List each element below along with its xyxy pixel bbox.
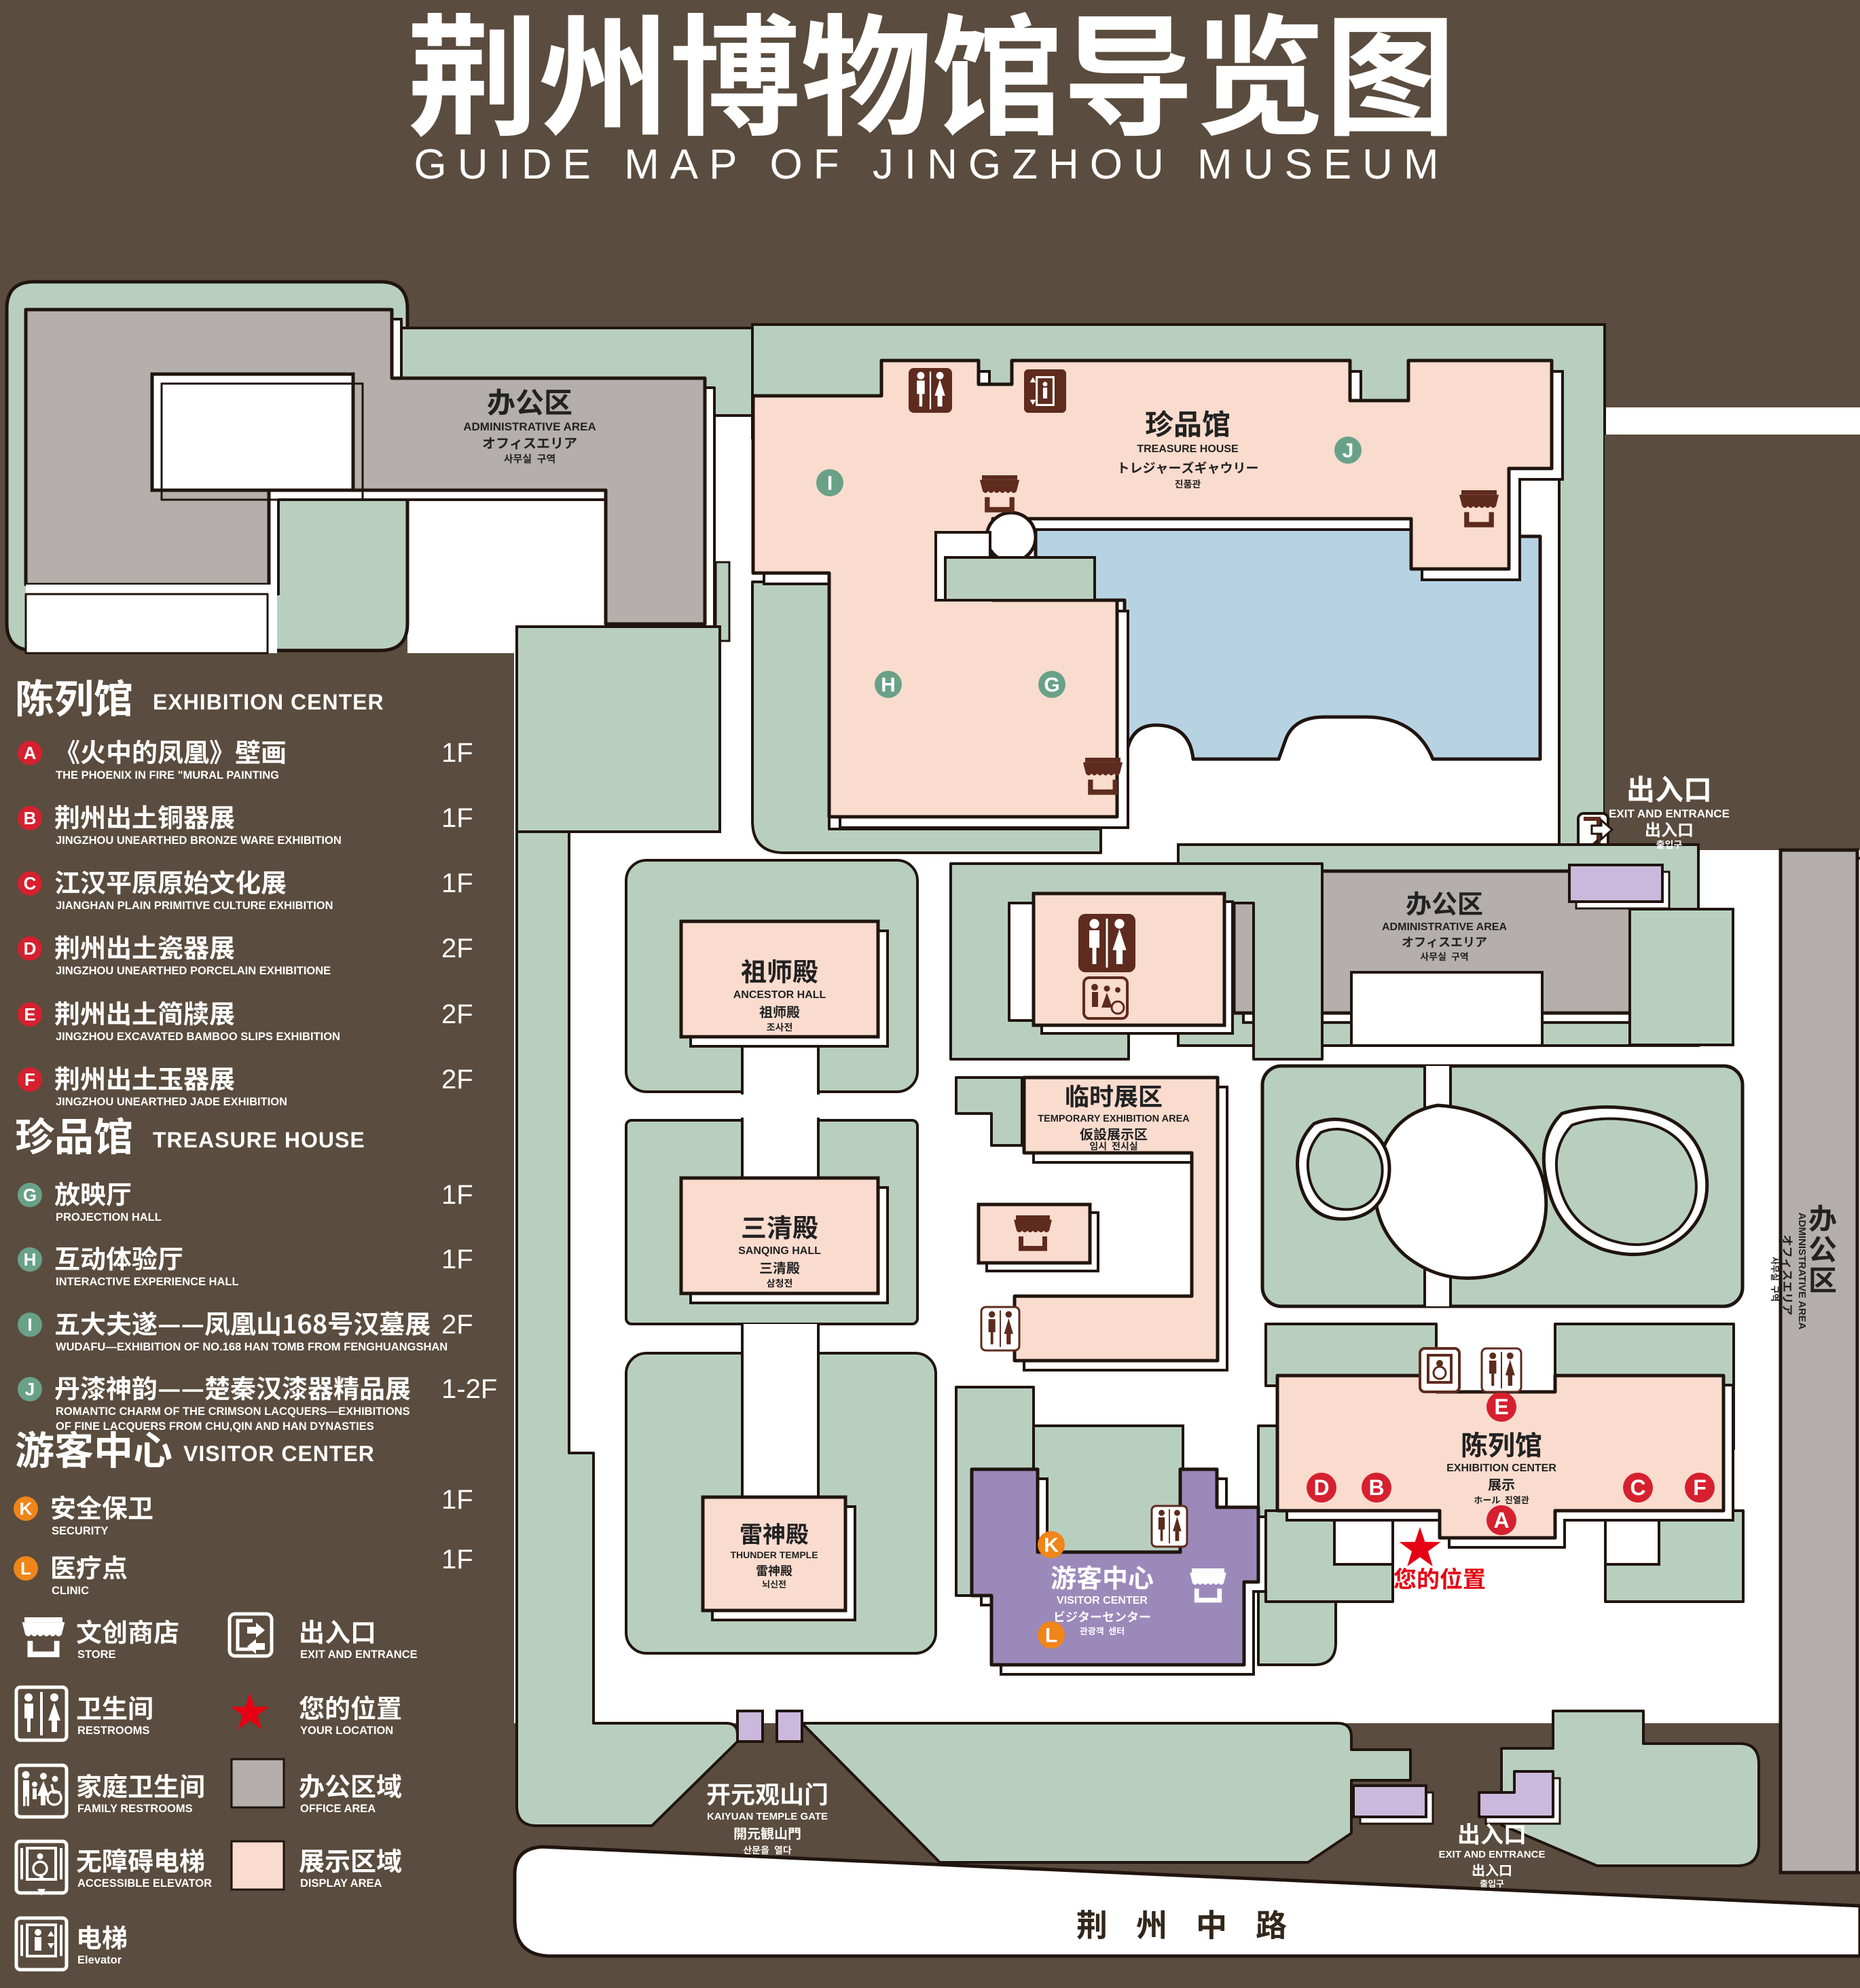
svg-text:ANCESTOR HALL: ANCESTOR HALL [733,989,826,1001]
svg-text:L: L [1045,1625,1057,1647]
svg-text:D: D [1313,1475,1329,1500]
svg-text:1F: 1F [441,738,473,768]
svg-text:Elevator: Elevator [77,1954,122,1966]
svg-text:I: I [827,473,833,495]
svg-text:EXHIBITION CENTER: EXHIBITION CENTER [153,690,384,714]
svg-text:1F: 1F [441,1485,473,1515]
svg-text:DISPLAY AREA: DISPLAY AREA [300,1877,382,1890]
svg-text:C: C [24,873,37,894]
svg-text:1F: 1F [441,803,473,833]
svg-text:JINGZHOU UNEARTHED PORCELAIN E: JINGZHOU UNEARTHED PORCELAIN EXHIBITIONE [56,965,331,977]
svg-text:KAIYUAN TEMPLE GATE: KAIYUAN TEMPLE GATE [707,1811,828,1822]
svg-text:ACCESSIBLE ELEVATOR: ACCESSIBLE ELEVATOR [77,1877,212,1890]
svg-text:JINGZHOU UNEARTHED JADE EXHIBI: JINGZHOU UNEARTHED JADE EXHIBITION [56,1096,287,1108]
svg-text:1-2F: 1-2F [441,1374,497,1404]
svg-text:OF FINE LACQUERS FROM CHU,QIN: OF FINE LACQUERS FROM CHU,QIN AND HAN DY… [56,1420,374,1433]
svg-text:K: K [20,1498,33,1519]
svg-text:D: D [24,938,37,959]
svg-text:F: F [24,1069,35,1090]
svg-text:A: A [24,743,37,763]
svg-text:TREASURE HOUSE: TREASURE HOUSE [153,1128,365,1152]
svg-text:G: G [23,1185,37,1205]
svg-text:2F: 2F [441,934,473,963]
svg-text:YOUR LOCATION: YOUR LOCATION [300,1725,393,1737]
svg-text:1F: 1F [441,1245,473,1274]
svg-text:THE PHOENIX IN FIRE "MURAL PAI: THE PHOENIX IN FIRE "MURAL PAINTING [56,769,279,781]
svg-text:PROJECTION HALL: PROJECTION HALL [56,1211,162,1223]
svg-text:1F: 1F [441,1180,473,1210]
svg-text:F: F [1693,1475,1707,1500]
svg-text:SANQING HALL: SANQING HALL [738,1245,821,1257]
svg-text:H: H [24,1249,37,1270]
svg-text:WUDAFU—EXHIBITION OF NO.168 HA: WUDAFU—EXHIBITION OF NO.168 HAN TOMB FRO… [56,1341,448,1353]
svg-text:STORE: STORE [77,1649,116,1661]
svg-text:EXIT AND ENTRANCE: EXIT AND ENTRANCE [1609,807,1730,820]
svg-text:2F: 2F [441,1310,473,1340]
svg-text:CLINIC: CLINIC [52,1585,89,1597]
svg-text:I: I [27,1314,32,1335]
svg-text:B: B [1368,1475,1384,1500]
svg-text:SECURITY: SECURITY [52,1525,108,1537]
svg-text:2F: 2F [441,999,473,1029]
svg-text:EXIT AND ENTRANCE: EXIT AND ENTRANCE [1439,1849,1546,1860]
svg-text:2F: 2F [441,1065,473,1094]
svg-text:E: E [24,1004,35,1025]
svg-text:EXHIBITION CENTER: EXHIBITION CENTER [1446,1462,1556,1474]
svg-text:FAMILY RESTROOMS: FAMILY RESTROOMS [77,1803,193,1815]
svg-text:THUNDER TEMPLE: THUNDER TEMPLE [730,1549,818,1560]
svg-text:VISITOR CENTER: VISITOR CENTER [183,1441,375,1466]
svg-text:JINGZHOU EXCAVATED BAMBOO SLIP: JINGZHOU EXCAVATED BAMBOO SLIPS EXHIBITI… [56,1031,340,1043]
svg-text:A: A [1493,1508,1509,1532]
svg-text:K: K [1044,1534,1059,1557]
svg-text:JIANGHAN PLAIN PRIMITIVE CULTU: JIANGHAN PLAIN PRIMITIVE CULTURE EXHIBIT… [56,900,333,912]
svg-text:J: J [25,1379,35,1399]
svg-text:G: G [1044,674,1059,697]
svg-text:E: E [1494,1395,1508,1419]
svg-text:VISITOR CENTER: VISITOR CENTER [1057,1595,1148,1606]
svg-text:1F: 1F [441,1545,473,1575]
svg-text:JINGZHOU UNEARTHED BRONZE WARE: JINGZHOU UNEARTHED BRONZE WARE EXHIBITIO… [56,834,342,847]
svg-text:TEMPORARY EXHIBITION AREA: TEMPORARY EXHIBITION AREA [1038,1113,1190,1124]
svg-text:EXIT AND ENTRANCE: EXIT AND ENTRANCE [300,1649,418,1661]
svg-text:RESTROOMS: RESTROOMS [77,1725,149,1737]
svg-text:ROMANTIC CHARM OF THE CRIMSON: ROMANTIC CHARM OF THE CRIMSON LACQUERS—E… [56,1405,410,1418]
svg-text:TREASURE HOUSE: TREASURE HOUSE [1137,443,1239,455]
svg-text:J: J [1343,440,1354,462]
svg-text:C: C [1630,1475,1645,1500]
svg-text:H: H [881,674,896,697]
svg-text:ADMINISTRATIVE AREA: ADMINISTRATIVE AREA [1796,1213,1808,1330]
svg-text:1F: 1F [441,868,473,898]
svg-text:GUIDE MAP OF JINGZHOU MUSEUM: GUIDE MAP OF JINGZHOU MUSEUM [414,141,1449,188]
svg-text:ADMINISTRATIVE AREA: ADMINISTRATIVE AREA [1382,921,1507,933]
svg-text:ADMINISTRATIVE AREA: ADMINISTRATIVE AREA [463,420,596,433]
svg-text:L: L [20,1558,31,1579]
svg-text:INTERACTIVE EXPERIENCE HALL: INTERACTIVE EXPERIENCE HALL [56,1276,239,1288]
svg-text:OFFICE AREA: OFFICE AREA [300,1803,376,1815]
svg-text:B: B [24,808,37,828]
